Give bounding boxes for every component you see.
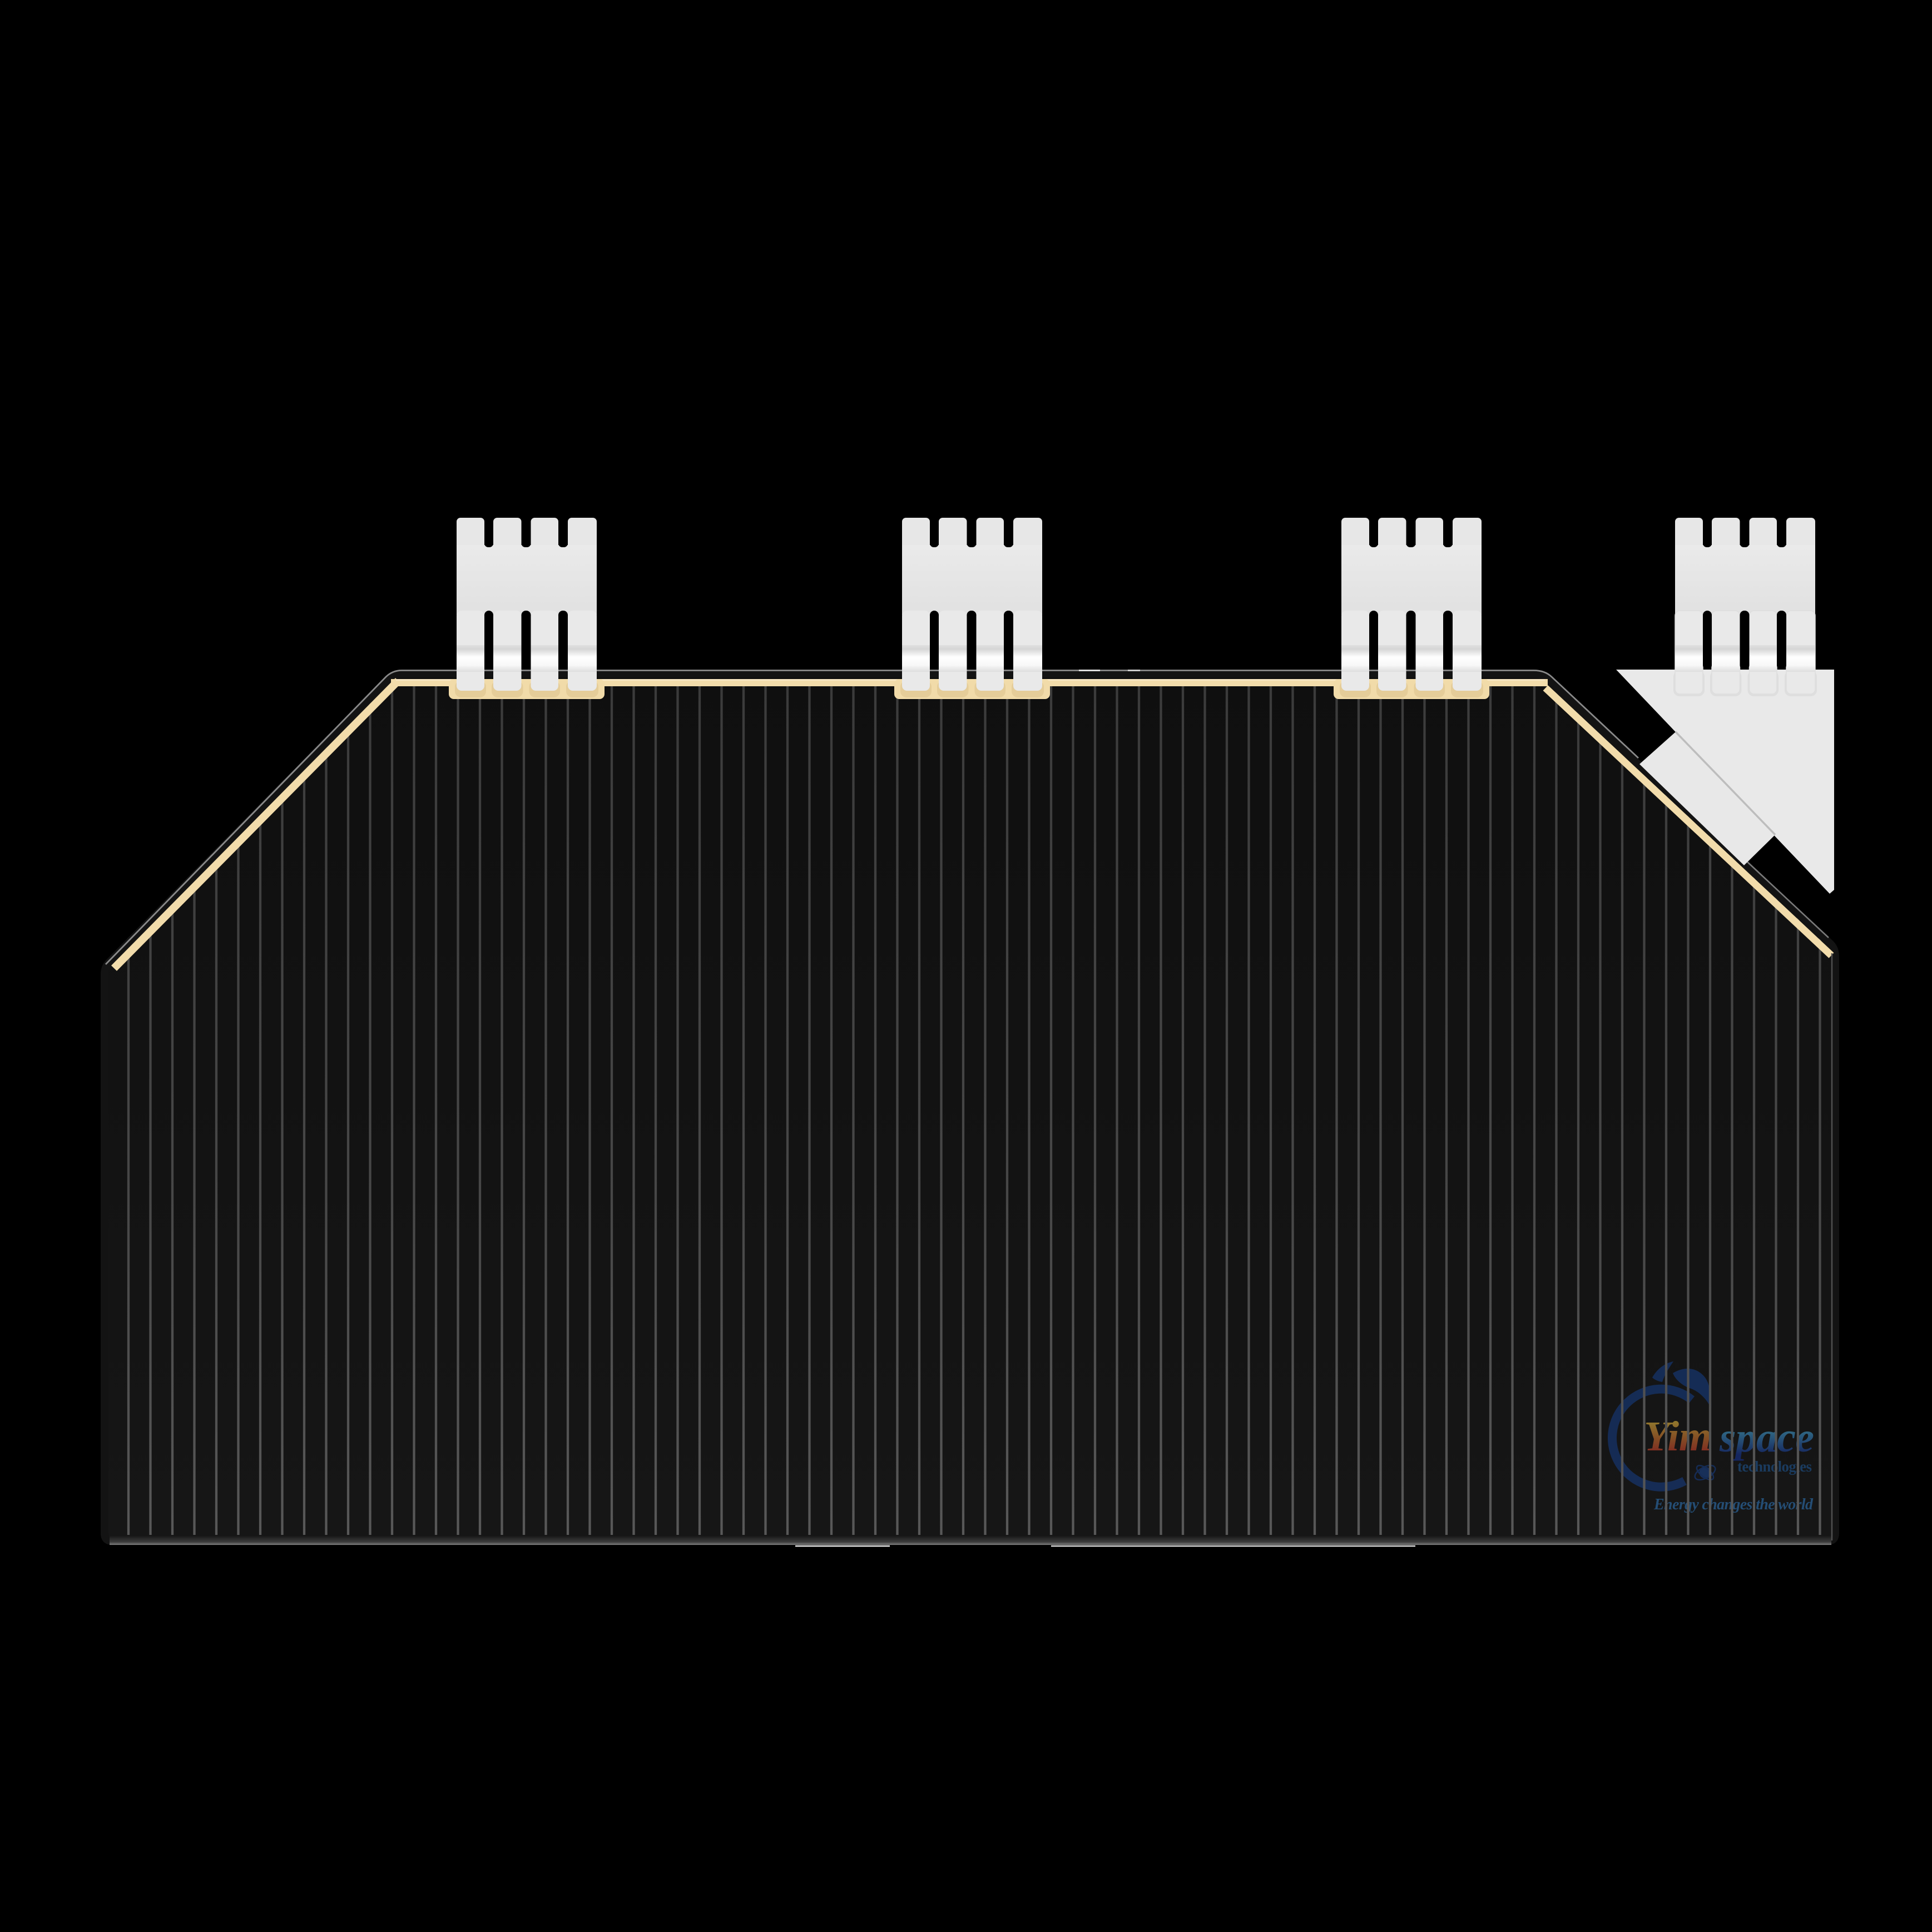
svg-text:Energy changes the world: Energy changes the world — [1653, 1496, 1814, 1513]
svg-text:technologies: technologies — [1737, 1458, 1812, 1475]
svg-text:Yim: Yim — [1644, 1413, 1712, 1460]
